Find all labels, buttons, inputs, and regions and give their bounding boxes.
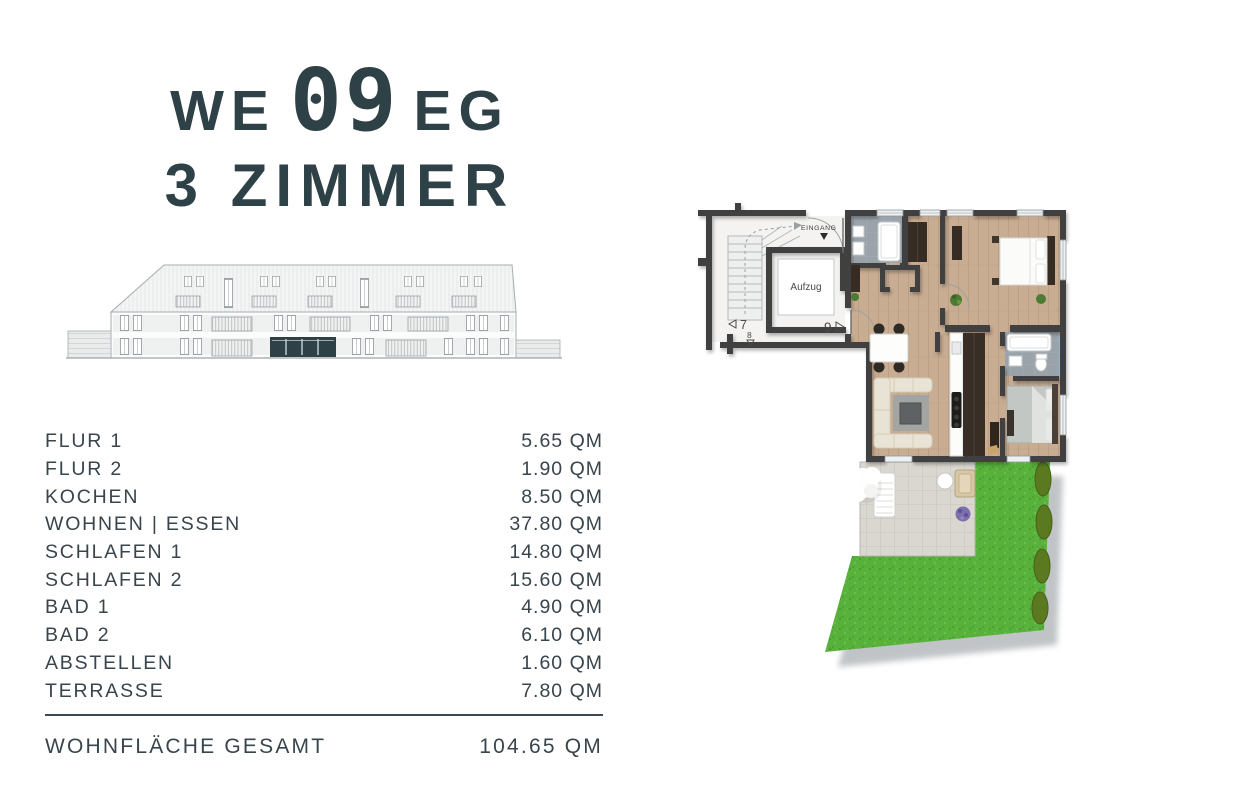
tree: [844, 467, 882, 503]
table-row: FLUR 21.90 QM: [45, 456, 603, 484]
terrace-table: [937, 473, 953, 489]
room-label: ABSTELLEN: [45, 652, 174, 675]
room-area: 5.65 QM: [521, 430, 603, 453]
room-area-table: FLUR 15.65 QM FLUR 21.90 QM KOCHEN8.50 Q…: [45, 428, 603, 705]
total-row: WOHNFLÄCHE GESAMT 104.65 QM: [45, 733, 603, 761]
table-row: SCHLAFEN 215.60 QM: [45, 566, 603, 594]
room-area: 37.80 QM: [509, 513, 603, 536]
unit-number: 09: [290, 58, 400, 144]
bedroom1-wardrobe: [952, 226, 962, 260]
room-area: 4.90 QM: [521, 596, 603, 619]
purple-plant: [956, 507, 971, 522]
room-area: 6.10 QM: [521, 624, 603, 647]
unit9-label: 9: [824, 320, 832, 335]
table-row: BAD 14.90 QM: [45, 594, 603, 622]
room-label: TERRASSE: [45, 680, 165, 703]
total-label: WOHNFLÄCHE GESAMT: [45, 735, 326, 759]
plant-icon: [1036, 294, 1046, 304]
room-label: FLUR 2: [45, 458, 123, 481]
hall-cabinet: [851, 265, 860, 292]
floor-plan: Aufzug: [698, 196, 1078, 681]
plant-icon: [950, 294, 962, 306]
chair: [894, 362, 905, 373]
left-annex: [68, 331, 111, 358]
dining-table: [870, 334, 908, 362]
sink-1: [853, 242, 864, 255]
bed2-bench: [1007, 410, 1014, 436]
room-label: SCHLAFEN 2: [45, 569, 183, 592]
room-area: 1.90 QM: [521, 458, 603, 481]
bed2-headboard: [1052, 384, 1058, 444]
table-row: BAD 26.10 QM: [45, 622, 603, 650]
entrance-label: EINGANG: [801, 225, 837, 232]
unit8-label: 8: [747, 330, 752, 340]
table-row: FLUR 15.65 QM: [45, 428, 603, 456]
elevator-label: Aufzug: [790, 282, 821, 293]
room-area: 7.80 QM: [521, 680, 603, 703]
table-row: KOCHEN8.50 QM: [45, 483, 603, 511]
sink-2: [1009, 356, 1022, 366]
unit7-label: 7: [740, 318, 747, 332]
washer: [853, 226, 864, 237]
kitchen-sink: [952, 342, 961, 354]
furniture: [851, 222, 1058, 456]
hall2-door-leaf: [990, 422, 999, 448]
room-label: KOCHEN: [45, 486, 139, 509]
elevation-drawing: [64, 252, 564, 368]
room-count-title: 3 ZIMMER: [128, 156, 552, 216]
table-row: SCHLAFEN 114.80 QM: [45, 539, 603, 567]
chair: [874, 362, 885, 373]
room-label: SCHLAFEN 1: [45, 541, 183, 564]
page-title: WE 09 EG 3 ZIMMER: [128, 58, 552, 216]
elevator: Aufzug: [778, 259, 834, 315]
armchair-cushion: [959, 474, 971, 493]
room-area: 1.60 QM: [521, 652, 603, 675]
room-label: WOHNEN | ESSEN: [45, 513, 241, 536]
chair: [894, 324, 905, 335]
room-area: 15.60 QM: [509, 569, 603, 592]
unit-floor: EG: [414, 83, 510, 140]
unit-title: WE 09 EG: [128, 58, 552, 144]
room-area: 14.80 QM: [509, 541, 603, 564]
total-area: 104.65 QM: [479, 735, 603, 759]
unit-prefix: WE: [170, 83, 276, 140]
room-label: BAD 2: [45, 624, 110, 647]
bed1-headboard: [1047, 236, 1055, 285]
exposé-page: { "title": { "we": "WE", "number": "09",…: [0, 0, 1244, 806]
floor-plan-drawing: Aufzug: [698, 196, 1078, 676]
room-label: FLUR 1: [45, 430, 123, 453]
table-row: WOHNEN | ESSEN37.80 QM: [45, 511, 603, 539]
table-row: TERRASSE7.80 QM: [45, 677, 603, 705]
table-divider: [45, 714, 603, 716]
chair: [874, 324, 885, 335]
room-label: BAD 1: [45, 596, 110, 619]
room-area: 8.50 QM: [521, 486, 603, 509]
highlighted-unit: [270, 337, 336, 357]
building-elevation: [64, 252, 564, 373]
table-row: ABSTELLEN1.60 QM: [45, 650, 603, 678]
coffee-table: [900, 403, 921, 424]
plant-icon: [851, 293, 859, 301]
right-annex: [516, 340, 560, 358]
